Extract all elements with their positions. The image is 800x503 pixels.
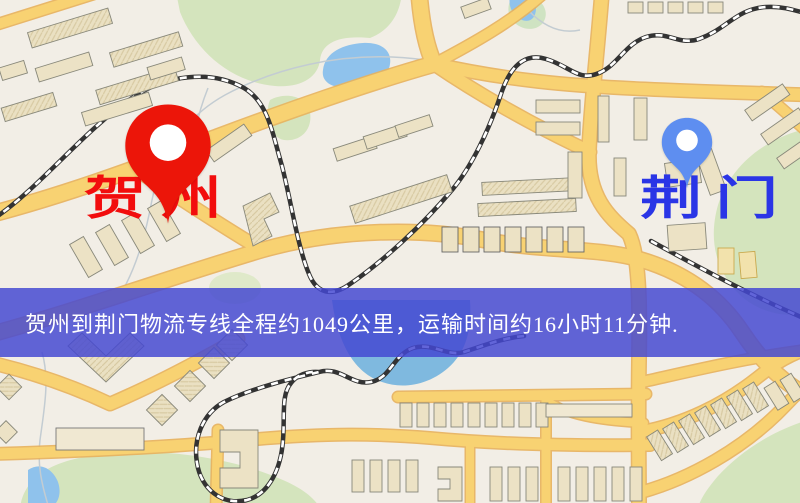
destination-pin[interactable] (660, 106, 714, 200)
map-canvas[interactable] (0, 0, 800, 503)
destination-pin-icon (660, 106, 714, 200)
route-info-text: 贺州到荆门物流专线全程约1049公里，运输时间约16小时11分钟. (25, 307, 679, 339)
route-info-banner: 贺州到荆门物流专线全程约1049公里，运输时间约16小时11分钟. (0, 288, 800, 357)
origin-pin-icon (122, 103, 214, 225)
origin-pin[interactable] (122, 103, 214, 225)
logistics-route-map: 贺州 荆门 贺州到荆门物流专线全程约1049公里，运输时间约16小时11分钟. (0, 0, 800, 503)
